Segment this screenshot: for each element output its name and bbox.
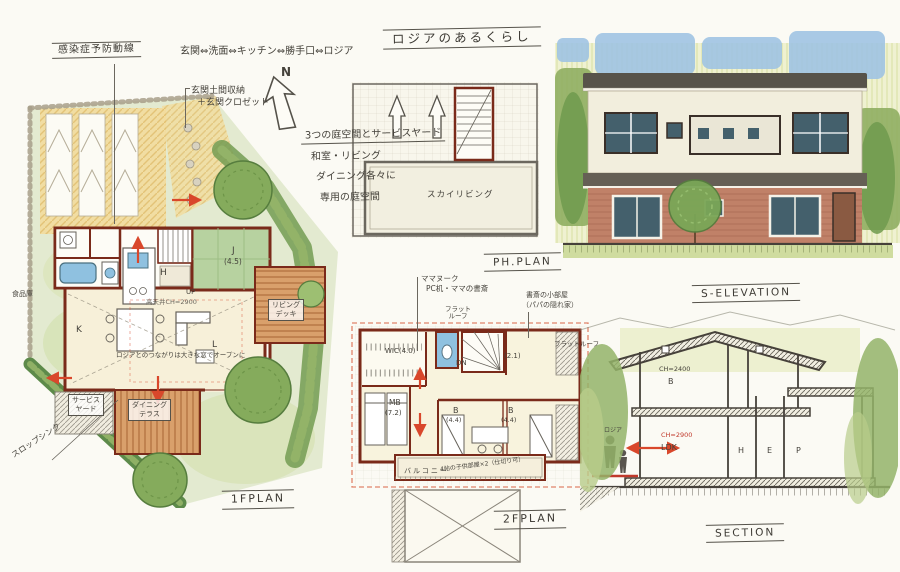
mama-nook-note-2: PC机・ママの書斎 bbox=[426, 285, 488, 294]
garden-concept-note-1: 和室・リビング bbox=[311, 150, 381, 163]
hall-label: H bbox=[160, 268, 167, 278]
closet-ne bbox=[556, 332, 578, 375]
bathtub bbox=[60, 263, 96, 283]
flat-roof-right-label: フラットルーフ bbox=[554, 341, 599, 348]
entry-storage-note: 玄関土間収納 bbox=[191, 86, 245, 96]
sky-living-label: スカイリビング bbox=[427, 191, 494, 201]
shared-desk bbox=[472, 427, 508, 443]
bedroom1-label: B bbox=[453, 406, 459, 415]
section-title: SECTION bbox=[706, 523, 785, 543]
south-elevation-drawing bbox=[555, 28, 900, 276]
section-room-2f: B bbox=[668, 377, 674, 386]
elevation-title: S-ELEVATION bbox=[692, 283, 800, 303]
tatami-size-label: (4.5) bbox=[224, 258, 242, 267]
flow-annotation-route: 玄関⇔洗面⇔キッチン⇔勝手口⇔ロジア bbox=[180, 46, 354, 58]
living-label: L bbox=[212, 340, 217, 350]
bedroom1-size-label: (4.4) bbox=[446, 417, 461, 424]
pantry-label: 食品庫 bbox=[12, 290, 33, 298]
mama-nook-note-1: ママヌーク bbox=[421, 275, 459, 284]
section-loggia-label: ロジア bbox=[604, 428, 622, 435]
flat-roof-line2: ルーフ bbox=[445, 313, 471, 320]
elevation-house bbox=[583, 73, 867, 244]
hand-drawn-house-presentation: ロジアのあるくらし 感染症予防動線 玄関⇔洗面⇔キッチン⇔勝手口⇔ロジア 玄関土… bbox=[0, 0, 900, 572]
dining-terrace-line2: テラス bbox=[132, 410, 167, 419]
flat-roof-label: フラット ルーフ bbox=[445, 306, 471, 321]
page-title: ロジアのあるくらし bbox=[383, 26, 541, 50]
section-hall-label: H bbox=[738, 446, 744, 455]
leader-line bbox=[528, 312, 529, 338]
garden-concept-note-3: 専用の庭空間 bbox=[320, 191, 380, 204]
garden-concept-note-2: ダイニング各々に bbox=[316, 170, 396, 183]
parking-area bbox=[40, 108, 166, 234]
ceiling-height-note: 高天井CH=2900 bbox=[146, 299, 197, 306]
section-entrance-label: E bbox=[767, 446, 772, 455]
kitchen-label: K bbox=[76, 325, 82, 335]
master-bedroom-label: MB bbox=[389, 399, 401, 408]
living-deck-label: リビング デッキ bbox=[268, 299, 304, 321]
plan-2f-title: 2FPLAN bbox=[494, 509, 566, 529]
ph-stairwell bbox=[455, 88, 493, 160]
stairs-2f bbox=[462, 332, 504, 372]
section-ch-2f: CH=2400 bbox=[659, 366, 690, 373]
papa-den-note-2: （パパの隠れ家） bbox=[522, 301, 578, 309]
section-ch-1f: CH=2900 bbox=[661, 432, 692, 439]
master-size-label: (7.2) bbox=[385, 409, 402, 417]
closet-se bbox=[556, 405, 578, 460]
bedroom2-size-label: (4.4) bbox=[501, 417, 516, 424]
front-tree bbox=[669, 180, 721, 232]
flow-annotation-title: 感染症予防動線 bbox=[52, 41, 141, 58]
sofa bbox=[176, 312, 210, 323]
hill-ridge bbox=[580, 312, 895, 330]
leader-line bbox=[185, 88, 186, 128]
dining-terrace-label: ダイニング テラス bbox=[128, 399, 171, 421]
wic-label: WIC(4.0) bbox=[385, 347, 415, 355]
entry-closet-note: ＋玄関クロゼット bbox=[197, 98, 269, 108]
entry-door bbox=[833, 193, 855, 241]
plan-1f-title: 1FPLAN bbox=[222, 489, 294, 509]
section-drawing bbox=[580, 300, 898, 528]
section-porch-label: P bbox=[796, 446, 801, 455]
living-deck-line1: リビング bbox=[272, 301, 300, 310]
leader-line bbox=[417, 277, 418, 351]
papa-den-note-1: 書斎の小部屋 bbox=[526, 291, 568, 299]
dining-table bbox=[117, 309, 153, 351]
service-yard-line1: サービス bbox=[72, 396, 100, 405]
washer bbox=[60, 232, 76, 248]
ph-plan-title: PH.PLAN bbox=[484, 252, 561, 272]
service-yard-line2: ヤード bbox=[72, 405, 100, 414]
dining-terrace-line1: ダイニング bbox=[132, 401, 167, 410]
ph-plan-drawing bbox=[345, 66, 545, 271]
tatami-room-label: J bbox=[232, 246, 235, 256]
north-label: N bbox=[281, 66, 291, 80]
living-deck-line2: デッキ bbox=[272, 310, 300, 319]
leader-line bbox=[185, 88, 190, 89]
leader-line bbox=[114, 64, 115, 224]
bedroom2-label: B bbox=[508, 406, 514, 415]
section-room-1f: LDK bbox=[661, 443, 677, 452]
upper-windows bbox=[605, 113, 848, 154]
small-room-label: (2.1) bbox=[504, 352, 521, 360]
stairs-up-label: UP bbox=[186, 288, 195, 296]
stairs-dn-label: DN bbox=[456, 359, 467, 367]
service-yard-label: サービス ヤード bbox=[68, 394, 104, 416]
loggia-open-note: ロジアとのつながりは大きな窓でオープンに bbox=[116, 352, 245, 359]
